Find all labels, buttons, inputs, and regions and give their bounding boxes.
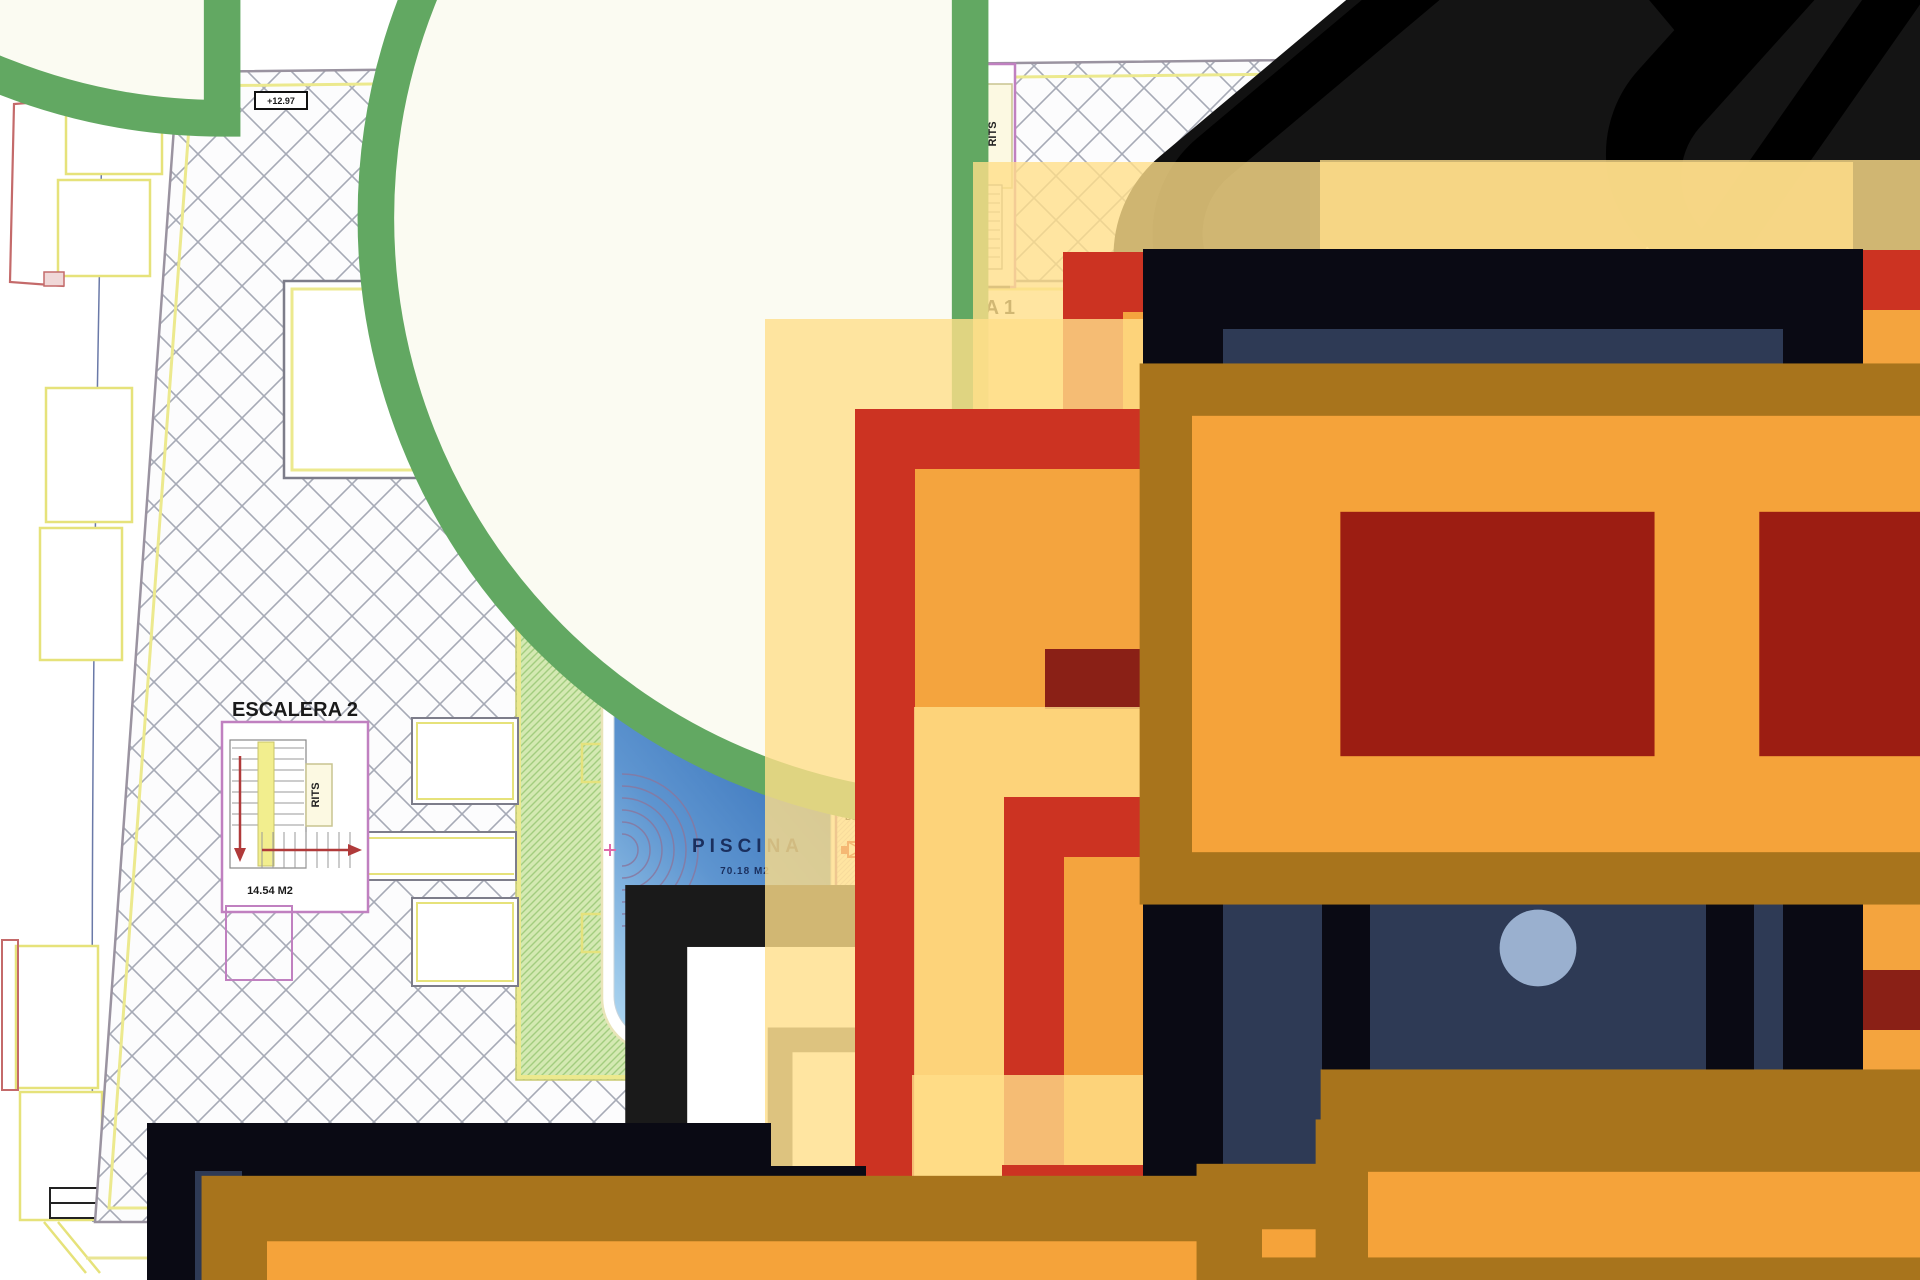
pool-area-label: 70.18 M2 <box>720 866 770 877</box>
code-tag-icon <box>1166 390 1920 879</box>
elevation-marker: +12.97 <box>255 92 307 109</box>
door-swing-icon <box>0 0 222 118</box>
escalera2-label: ESCALERA 2 <box>232 699 358 721</box>
floor-plan-page: SOLARIUM +12.97 <box>0 0 1920 1280</box>
elevation-label: +12.97 <box>267 96 295 106</box>
escalera2-rits-label: RITS <box>310 782 322 807</box>
floor-plan-canvas: SOLARIUM +12.97 <box>0 0 1920 1280</box>
escalera2-area-label: 14.54 M2 <box>247 885 293 897</box>
escalera1-rits-label: RITS <box>987 121 999 146</box>
